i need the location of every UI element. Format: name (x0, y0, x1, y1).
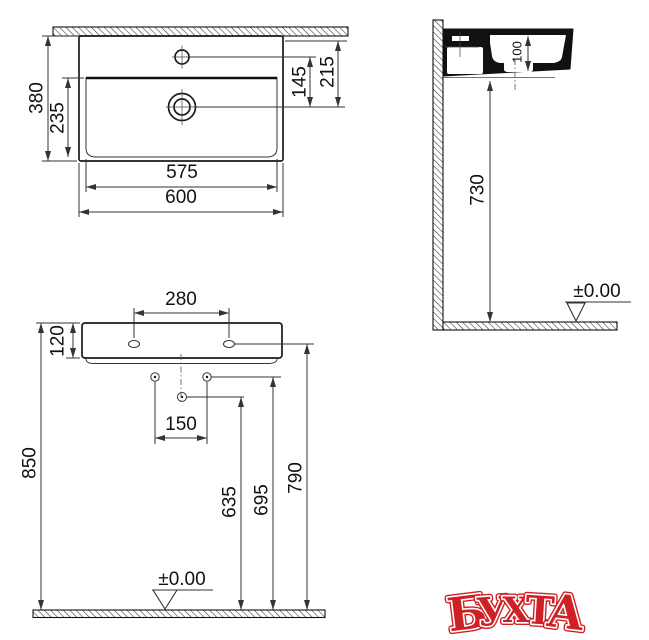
watermark-logo: Б Б Б У У У Х Х Х Т Т Т А А А (444, 583, 588, 640)
washbasin-technical-drawing: 380 235 575 600 145 215 (0, 0, 649, 640)
svg-text:А: А (544, 583, 588, 640)
dim-label-600: 600 (165, 187, 197, 208)
datum-triangle-front (153, 590, 177, 609)
datum-symbol-side: ±0.00 (565, 281, 631, 321)
dim-850: 850 (20, 323, 80, 610)
front-view: 280 120 150 850 635 695 (20, 289, 325, 618)
dim-145: 145 (290, 57, 311, 107)
datum-symbol-front: ±0.00 (152, 569, 213, 609)
dim-790: 790 (286, 344, 307, 610)
faucet-hole-slot (452, 36, 469, 41)
mounting-hole-right (224, 341, 235, 348)
floor-strip (443, 322, 617, 330)
dim-label-215: 215 (318, 56, 339, 88)
fixing-hole-right (203, 373, 211, 381)
dim-label-730: 730 (468, 174, 489, 206)
datum-label-side: ±0.00 (573, 281, 620, 302)
datum-triangle-side (567, 303, 585, 321)
dim-label-280: 280 (165, 289, 197, 310)
dim-120: 120 (48, 323, 80, 358)
overflow-chamber (447, 47, 483, 74)
drain-hole (166, 89, 198, 125)
dim-730: 730 (468, 81, 490, 322)
drain-outlet-hole (178, 393, 187, 402)
dim-label-575: 575 (166, 162, 198, 183)
datum-label-front: ±0.00 (158, 569, 205, 590)
mounting-hole-left (129, 341, 140, 348)
dim-label-145: 145 (290, 66, 311, 98)
sink-cross-section (442, 29, 573, 92)
dim-label-635: 635 (220, 486, 241, 518)
wall-strip (433, 20, 443, 330)
dim-label-790: 790 (286, 462, 307, 494)
dim-380: 380 (27, 36, 77, 161)
watermark-letter: А А А (544, 583, 588, 640)
dim-label-850: 850 (20, 447, 41, 479)
floor-strip-front (33, 610, 325, 618)
dim-695: 695 (252, 377, 273, 610)
dim-label-380: 380 (27, 82, 48, 114)
dim-label-150: 150 (165, 414, 197, 435)
dim-label-120: 120 (48, 325, 69, 357)
basin-inner-edge (86, 78, 277, 157)
side-view: 100 730 ±0.00 (433, 20, 631, 330)
dim-635: 635 (220, 397, 241, 610)
dim-label-695: 695 (252, 484, 273, 516)
dim-150: 150 (155, 382, 207, 444)
wall-section-strip (53, 27, 348, 36)
dim-label-100: 100 (510, 41, 525, 63)
dim-280: 280 (134, 289, 229, 338)
plan-view: 380 235 575 600 145 215 (27, 27, 348, 217)
dim-label-235: 235 (48, 102, 69, 134)
fixing-hole-left (151, 373, 159, 381)
sink-front-face (82, 323, 282, 358)
